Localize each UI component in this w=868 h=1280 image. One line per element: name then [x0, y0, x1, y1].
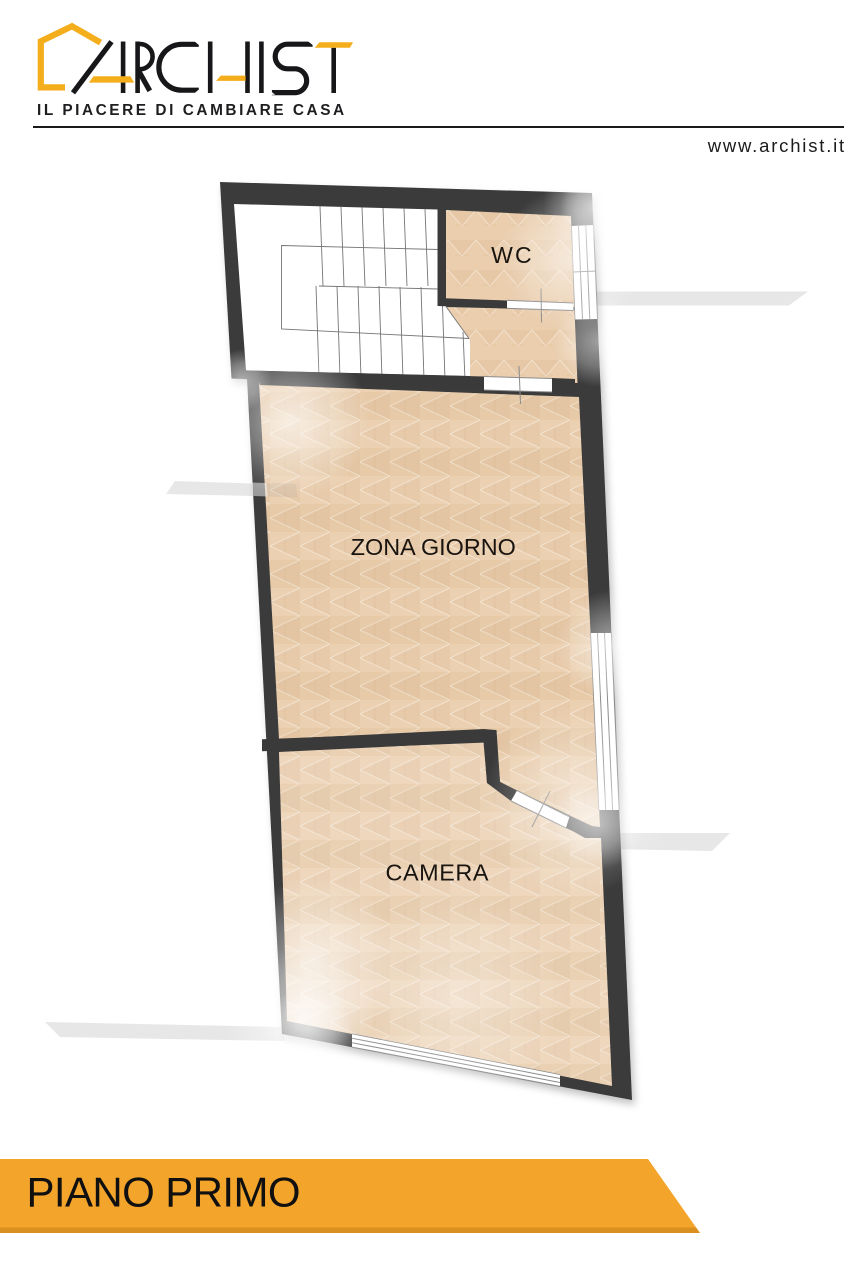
- svg-text:WC: WC: [491, 242, 534, 268]
- svg-text:PIANO PRIMO: PIANO PRIMO: [27, 1169, 300, 1216]
- svg-text:CAMERA: CAMERA: [385, 860, 489, 886]
- svg-text:ZONA GIORNO: ZONA GIORNO: [351, 534, 516, 560]
